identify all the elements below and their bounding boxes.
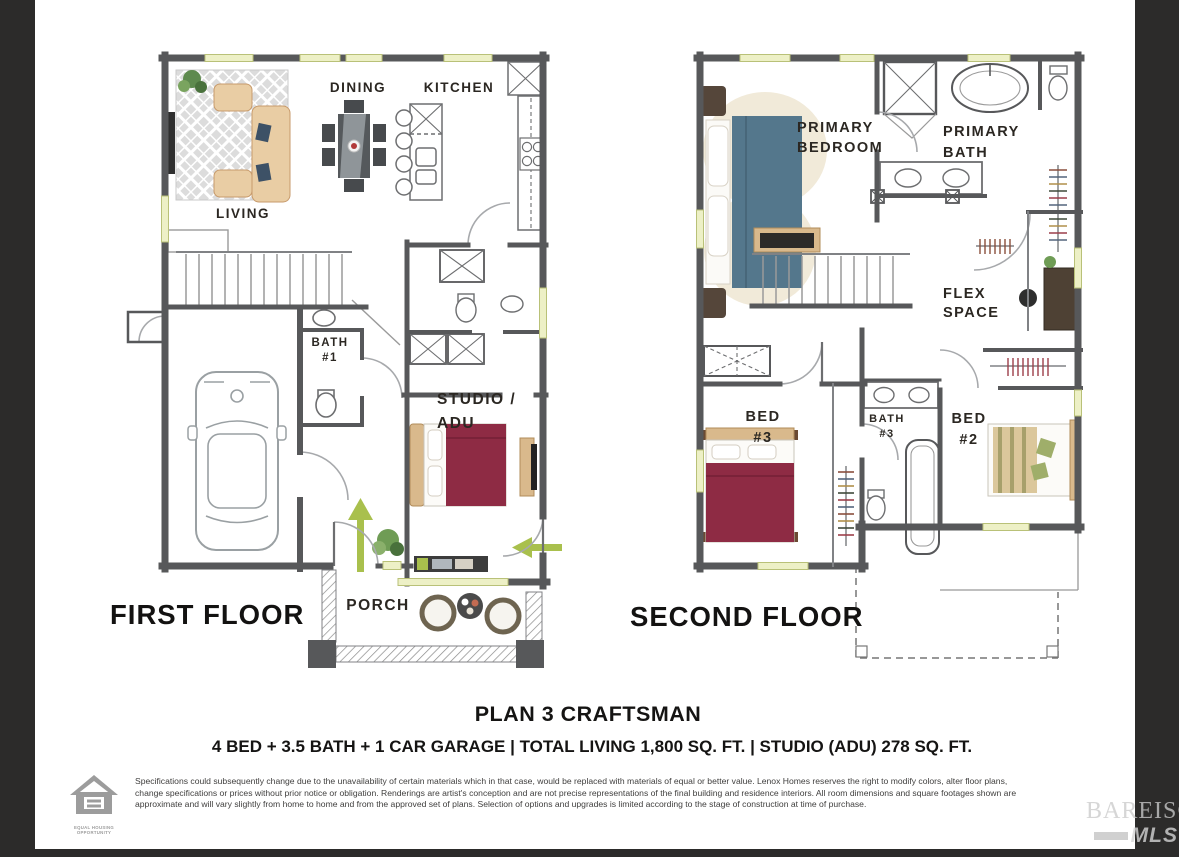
- equal-housing-label: EQUAL HOUSING OPPORTUNITY: [66, 825, 122, 835]
- label-flex-line1: FLEX: [943, 285, 999, 304]
- roof-outline: [856, 530, 1078, 658]
- porch-table: [457, 593, 483, 619]
- porch-post: [516, 640, 544, 668]
- maroon-blanket: [446, 424, 506, 506]
- label-bath3-line1: BATH: [869, 412, 905, 427]
- bed-headboard: [410, 424, 424, 506]
- label-bath1-line1: BATH: [311, 336, 348, 351]
- label-bed2: BED #2: [951, 409, 986, 450]
- porch-post: [308, 640, 336, 668]
- label-primary-bath-line2: BATH: [943, 143, 1020, 164]
- desk: [1044, 268, 1078, 330]
- sofa: [252, 106, 290, 202]
- bed2-furniture: [988, 420, 1079, 500]
- toilet: [867, 496, 885, 520]
- armchair: [214, 84, 252, 111]
- label-primary-bath: PRIMARY BATH: [943, 122, 1020, 163]
- studio-furniture: [372, 424, 537, 572]
- label-bath3: BATH #3: [869, 412, 905, 441]
- label-primary-bath-line1: PRIMARY: [943, 122, 1020, 143]
- maroon-blanket: [706, 463, 794, 542]
- dining-furniture: [322, 100, 386, 192]
- first-floor-title: FIRST FLOOR: [110, 599, 304, 631]
- bed-post: [700, 86, 726, 116]
- plant: [372, 529, 404, 556]
- floor-plan-sheet: DINING KITCHEN LIVING BATH #1 STUDIO / A…: [0, 0, 1179, 857]
- armchair: [214, 170, 252, 197]
- utility-fixtures: [410, 250, 523, 364]
- equal-housing-logo: EQUAL HOUSING OPPORTUNITY: [66, 772, 122, 835]
- label-studio-line1: STUDIO /: [437, 388, 516, 412]
- plan-title: PLAN 3 CRAFTSMAN: [475, 702, 702, 727]
- porch-chair: [487, 600, 519, 632]
- label-dining: DINING: [330, 81, 386, 95]
- hall-closet: [704, 346, 770, 376]
- label-studio-line2: ADU: [437, 412, 516, 436]
- label-bed2-line2: #2: [951, 430, 986, 451]
- bareis-mls-watermark: BAREIS® MLS: [1086, 799, 1178, 846]
- stairs-first-floor: [168, 230, 400, 345]
- label-primary-bedroom: PRIMARY BEDROOM: [797, 119, 883, 158]
- plan-specs: 4 BED + 3.5 BATH + 1 CAR GARAGE | TOTAL …: [212, 737, 972, 757]
- label-bed3-line2: #3: [745, 428, 780, 449]
- bed-post: [700, 288, 726, 318]
- second-floor-title: SECOND FLOOR: [630, 601, 864, 633]
- label-studio-adu: STUDIO / ADU: [437, 388, 516, 436]
- label-bed2-line1: BED: [951, 409, 986, 430]
- equal-housing-house-icon: [66, 772, 122, 820]
- disclaimer-text: Specifications could subsequently change…: [135, 776, 1037, 811]
- label-bed3-line1: BED: [745, 407, 780, 428]
- label-flex-line2: SPACE: [943, 304, 999, 323]
- label-bath1: BATH #1: [311, 336, 348, 366]
- primary-bed: [732, 116, 802, 288]
- living-room-furniture: [167, 70, 290, 202]
- label-kitchen: KITCHEN: [424, 81, 495, 95]
- watermark-bareis: BAREIS®: [1086, 799, 1178, 823]
- second-floor-plan: [697, 55, 1082, 659]
- label-bed3: BED #3: [745, 407, 780, 448]
- label-bath3-line2: #3: [869, 427, 905, 442]
- label-bath1-line2: #1: [311, 351, 348, 366]
- toilet: [1050, 66, 1067, 74]
- label-porch: PORCH: [346, 598, 409, 614]
- label-primary-bedroom-line1: PRIMARY: [797, 119, 883, 139]
- stairs-second-floor: [752, 254, 910, 304]
- watermark-mls: MLS: [1131, 825, 1178, 846]
- garage-car: [188, 372, 286, 550]
- watermark-bar: [1094, 832, 1128, 840]
- porch-chair: [422, 597, 454, 629]
- label-flex-space: FLEX SPACE: [943, 285, 999, 322]
- label-primary-bedroom-line2: BEDROOM: [797, 139, 883, 159]
- label-living: LIVING: [216, 207, 270, 221]
- studio-tv: [531, 444, 537, 490]
